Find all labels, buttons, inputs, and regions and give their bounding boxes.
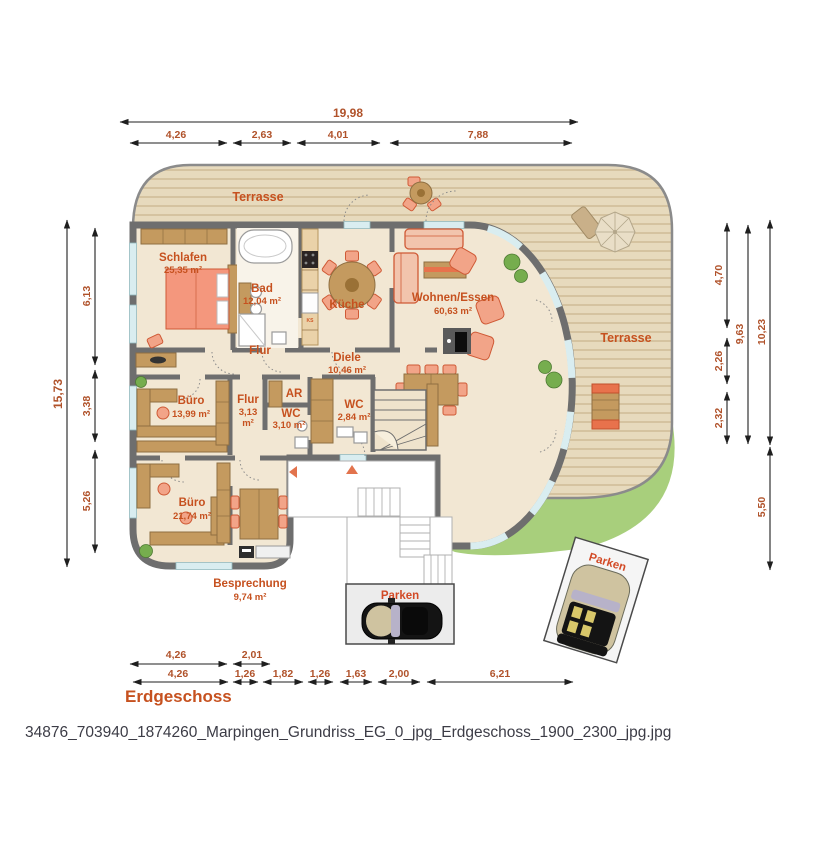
parking-spot-1: Parken (346, 584, 454, 644)
dim-bottom-l4: 1,26 (310, 668, 331, 680)
room-label-ar: AR (286, 388, 303, 400)
kitchen-ks-label: KS (307, 318, 315, 324)
dim-right-sum: 9,63 (734, 324, 746, 345)
dim-top-2: 2,63 (252, 129, 273, 141)
room-label-bad: Bad (251, 283, 273, 295)
room-area-buero2: 21,74 m² (173, 511, 211, 522)
dim-top-3: 4,01 (328, 129, 349, 141)
parking1-label: Parken (381, 590, 419, 602)
dim-bottom-l1: 4,26 (168, 668, 189, 680)
room-area-wc2: 2,84 m² (338, 412, 371, 423)
sun-lounger-icon (592, 384, 619, 429)
room-label-buero2: Büro (179, 497, 206, 509)
room-area-diele: 10,46 m² (328, 365, 366, 376)
dim-bottom-l7: 6,21 (490, 668, 511, 680)
terrace-right-label: Terrasse (600, 331, 651, 345)
floorplan-page: Terrasse Terrasse (0, 0, 834, 850)
dim-left-3: 5,26 (81, 491, 93, 512)
dimensions-top: 19,98 4,26 2,63 4,01 7,88 (120, 106, 578, 143)
dim-right-3: 2,32 (713, 408, 725, 429)
dim-right-bottom: 5,50 (756, 497, 768, 518)
floorplan-canvas: Terrasse Terrasse (0, 0, 834, 850)
dim-top-4: 7,88 (468, 129, 489, 141)
dim-bottom-u1: 4,26 (166, 649, 187, 661)
staircase (374, 384, 438, 450)
room-label-wc2: WC (344, 399, 363, 411)
dim-bottom-l3: 1,82 (273, 668, 294, 680)
dimensions-right: 4,70 2,26 2,32 9,63 10,23 5,50 (713, 220, 770, 570)
dim-top-1: 4,26 (166, 129, 187, 141)
dim-bottom-u2: 2,01 (242, 649, 263, 661)
meeting-room-furniture (231, 489, 290, 558)
room-area-schlafen: 25,35 m² (164, 265, 202, 276)
room-area-buero1: 13,99 m² (172, 409, 210, 420)
floor-title: Erdgeschoss (125, 687, 232, 706)
room-area-bad: 12,04 m² (243, 296, 281, 307)
room-label-wohnen: Wohnen/Essen (412, 292, 494, 304)
dim-right-total: 10,23 (756, 319, 768, 345)
room-label-flur: Flur (249, 345, 271, 357)
dim-right-1: 4,70 (713, 265, 725, 286)
dim-left-1: 6,13 (81, 286, 93, 307)
room-label-besprechung: Besprechung (213, 578, 287, 590)
dim-top-total: 19,98 (333, 106, 363, 120)
dim-left-2: 3,38 (81, 396, 93, 417)
room-area-wc1: 3,10 m² (273, 420, 306, 431)
room-area-flur2-unit: m² (242, 418, 254, 429)
dimensions-bottom: 4,26 2,01 4,26 1,26 1,82 1,26 1,63 2,00 … (130, 649, 573, 682)
room-area-wohnen: 60,63 m² (434, 306, 472, 317)
room-label-buero1: Büro (178, 395, 205, 407)
dim-left-total: 15,73 (51, 379, 65, 409)
room-label-flur2: Flur (237, 394, 259, 406)
room-label-schlafen: Schlafen (159, 252, 207, 264)
dim-bottom-l5: 1,63 (346, 668, 367, 680)
dim-bottom-l2: 1,26 (235, 668, 256, 680)
entrance-area (288, 461, 452, 593)
room-label-wc1: WC (281, 408, 300, 420)
car-icon (362, 598, 442, 644)
dimensions-left: 15,73 6,13 3,38 5,26 (51, 220, 95, 567)
room-area-flur2: 3,13 (239, 407, 258, 418)
room-label-kueche: Küche (329, 299, 364, 311)
parking-spot-2: Parken (544, 537, 648, 663)
dim-bottom-l6: 2,00 (389, 668, 410, 680)
dim-right-2: 2,26 (713, 351, 725, 372)
image-filename-caption: 34876_703940_1874260_Marpingen_Grundriss… (25, 724, 671, 741)
room-label-diele: Diele (333, 352, 361, 364)
terrace-top-label: Terrasse (232, 190, 283, 204)
room-area-besprechung: 9,74 m² (234, 592, 267, 603)
